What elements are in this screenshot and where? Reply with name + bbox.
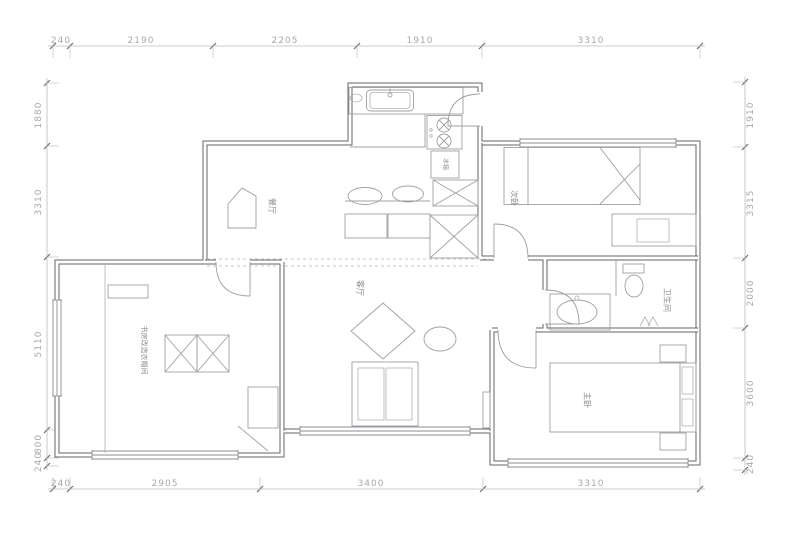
master-bedroom-furniture	[550, 345, 696, 450]
dim-bottom-1: 2905	[152, 479, 179, 489]
dim-top-3: 1910	[407, 36, 434, 46]
room-labels: 餐厅 客厅 次卧 主卧 卫生间 书房改造衣帽间 冰箱	[140, 158, 673, 408]
window-master-bottom	[508, 458, 688, 468]
dim-top-1: 2190	[128, 36, 155, 46]
dim-left-4: 240	[34, 452, 44, 472]
label-living: 客厅	[356, 280, 366, 296]
second-bedroom-furniture	[504, 148, 696, 247]
rug-diamond	[351, 303, 415, 359]
dim-right-2: 2000	[746, 280, 756, 307]
storage-square-right	[197, 335, 229, 372]
study-furniture	[105, 264, 278, 453]
living-furniture	[351, 303, 490, 428]
storage-square-left	[165, 335, 197, 372]
interior-walls-void	[205, 143, 698, 431]
dining-chair-left	[348, 188, 382, 205]
washbasin	[550, 294, 610, 330]
dim-left-2: 5110	[34, 331, 44, 358]
kitchen-sink	[367, 89, 414, 112]
dim-left-3: 800	[34, 434, 44, 454]
dining-furniture	[228, 186, 430, 238]
dim-top-4: 3310	[578, 36, 605, 46]
shaft-box-upper	[433, 180, 478, 206]
study-door	[216, 262, 250, 296]
dimension-ticks	[44, 43, 748, 492]
second-bedroom-door-opening	[494, 254, 528, 262]
dining-chair-right	[393, 186, 424, 202]
dim-right-3: 3600	[746, 380, 756, 407]
dim-right-0: 1910	[746, 102, 756, 129]
window-study-bottom	[92, 450, 238, 460]
label-second-bedroom: 次卧	[510, 190, 520, 206]
nightstand-bottom	[660, 433, 686, 450]
desk	[612, 214, 696, 246]
double-bed	[550, 363, 696, 432]
dining-table-right	[388, 214, 430, 238]
coffee-table	[424, 327, 456, 351]
toilet	[623, 264, 644, 297]
interior-walls	[205, 143, 698, 431]
window-study-left	[52, 300, 62, 396]
entry-door	[448, 94, 480, 126]
dim-top-0: 240	[51, 36, 71, 46]
window-second-bedroom-top	[520, 138, 676, 148]
sofa	[352, 362, 418, 426]
second-bedroom-door	[494, 224, 528, 258]
floor-plan-page: 240 2190 2205 1910 3310 240 2905 3400 33…	[0, 0, 790, 550]
floor-drain-marks	[640, 317, 658, 326]
corner-diagonal	[238, 426, 268, 451]
master-bedroom-door	[498, 330, 536, 368]
master-door-opening	[498, 326, 536, 334]
dim-bottom-0: 240	[51, 479, 71, 489]
window-living-bottom	[300, 426, 470, 436]
side-cabinet	[248, 387, 278, 428]
entry-door-opening	[476, 92, 484, 126]
dim-bottom-2: 3400	[358, 479, 385, 489]
dim-top-2: 2205	[272, 36, 299, 46]
label-fridge: 冰箱	[442, 158, 450, 170]
label-bathroom: 卫生间	[663, 288, 673, 312]
single-bed	[504, 148, 640, 205]
bathroom-door-opening	[541, 290, 549, 324]
dim-left-0: 1880	[34, 102, 44, 129]
shelf	[108, 285, 148, 298]
door-openings	[216, 92, 549, 334]
dining-table-left	[345, 214, 387, 238]
kitchen-cabinet-edge	[350, 114, 425, 147]
label-dining: 餐厅	[268, 198, 277, 214]
label-master-bedroom: 主卧	[583, 392, 593, 408]
dim-left-1: 3310	[34, 189, 44, 216]
nightstand-top	[660, 345, 686, 362]
entry-cabinet	[228, 188, 256, 228]
tv-cabinet	[483, 392, 490, 428]
gas-stove	[427, 116, 462, 150]
dim-bottom-3: 3310	[578, 479, 605, 489]
dim-right-1: 3315	[746, 190, 756, 217]
floor-plan-drawing: 240 2190 2205 1910 3310 240 2905 3400 33…	[0, 0, 790, 550]
kitchen-fixtures	[349, 88, 478, 259]
dimension-lines	[44, 43, 748, 492]
label-study-cloakroom: 书房改造衣帽间	[140, 326, 149, 375]
dim-right-4: 240	[746, 454, 756, 474]
shaft-box-lower	[430, 215, 478, 258]
